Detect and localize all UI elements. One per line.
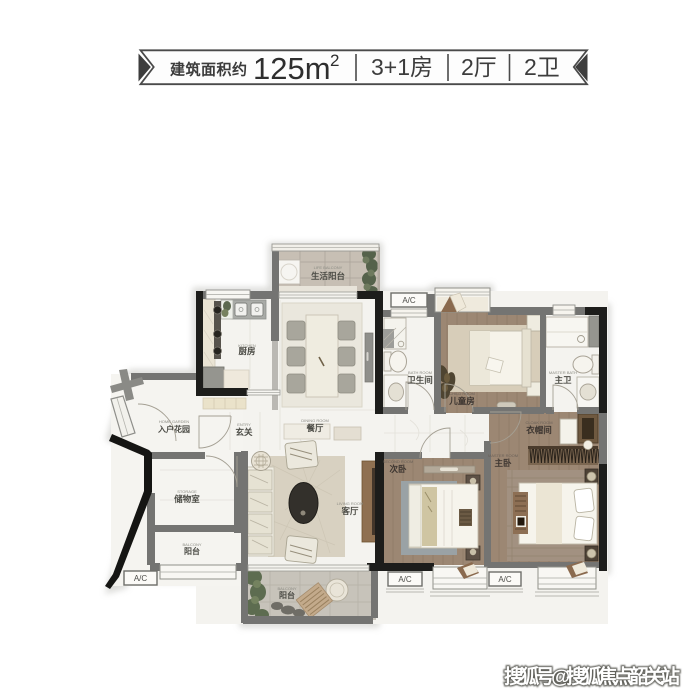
svg-text:玄关: 玄关 bbox=[235, 427, 253, 437]
svg-text:A/C: A/C bbox=[398, 575, 412, 584]
svg-text:餐厅: 餐厅 bbox=[305, 423, 324, 433]
svg-text:储物室: 储物室 bbox=[173, 494, 200, 504]
svg-text:BALCONY: BALCONY bbox=[277, 586, 296, 591]
svg-text:A/C: A/C bbox=[498, 575, 512, 584]
svg-text:LIFE BALCONY: LIFE BALCONY bbox=[314, 265, 343, 270]
svg-text:DINING ROOM: DINING ROOM bbox=[301, 418, 329, 423]
svg-text:搜狐号@搜狐焦点韶关站: 搜狐号@搜狐焦点韶关站 bbox=[504, 665, 680, 688]
svg-text:HOME GARDEN: HOME GARDEN bbox=[159, 419, 189, 424]
svg-text:2: 2 bbox=[330, 51, 339, 70]
svg-text:2卫: 2卫 bbox=[524, 54, 560, 80]
svg-text:MASTER BATH: MASTER BATH bbox=[549, 370, 577, 375]
svg-text:生活阳台: 生活阳台 bbox=[311, 271, 346, 281]
svg-text:3+1房: 3+1房 bbox=[371, 54, 433, 80]
svg-text:ENTRY: ENTRY bbox=[237, 422, 251, 427]
svg-text:阳台: 阳台 bbox=[184, 546, 200, 556]
svg-text:KITCHEN: KITCHEN bbox=[238, 343, 256, 348]
svg-text:儿童房: 儿童房 bbox=[448, 396, 475, 406]
svg-text:主卫: 主卫 bbox=[554, 375, 572, 385]
svg-text:入户花园: 入户花园 bbox=[157, 424, 190, 434]
svg-text:BATH ROOM: BATH ROOM bbox=[408, 370, 432, 375]
svg-text:MASTER ROOM: MASTER ROOM bbox=[488, 453, 518, 458]
svg-text:客厅: 客厅 bbox=[340, 506, 359, 516]
svg-text:阳台: 阳台 bbox=[279, 590, 295, 600]
svg-text:STORAGE: STORAGE bbox=[177, 489, 197, 494]
svg-text:A/C: A/C bbox=[402, 296, 416, 305]
svg-text:主卧: 主卧 bbox=[494, 458, 512, 468]
svg-text:CLOAK ROOM: CLOAK ROOM bbox=[525, 420, 552, 425]
svg-text:2厅: 2厅 bbox=[461, 54, 497, 80]
svg-text:次卧: 次卧 bbox=[389, 464, 407, 474]
svg-text:建筑面积约: 建筑面积约 bbox=[170, 61, 248, 79]
svg-text:125m: 125m bbox=[253, 51, 331, 86]
svg-text:BALCONY: BALCONY bbox=[182, 542, 201, 547]
svg-text:LIVING ROOM: LIVING ROOM bbox=[337, 501, 364, 506]
svg-text:CHILD ROOM: CHILD ROOM bbox=[449, 391, 475, 396]
svg-text:A/C: A/C bbox=[134, 574, 148, 583]
svg-text:卫生间: 卫生间 bbox=[407, 375, 433, 385]
svg-text:衣帽间: 衣帽间 bbox=[526, 425, 552, 435]
svg-text:SECOND ROOM: SECOND ROOM bbox=[383, 459, 414, 464]
